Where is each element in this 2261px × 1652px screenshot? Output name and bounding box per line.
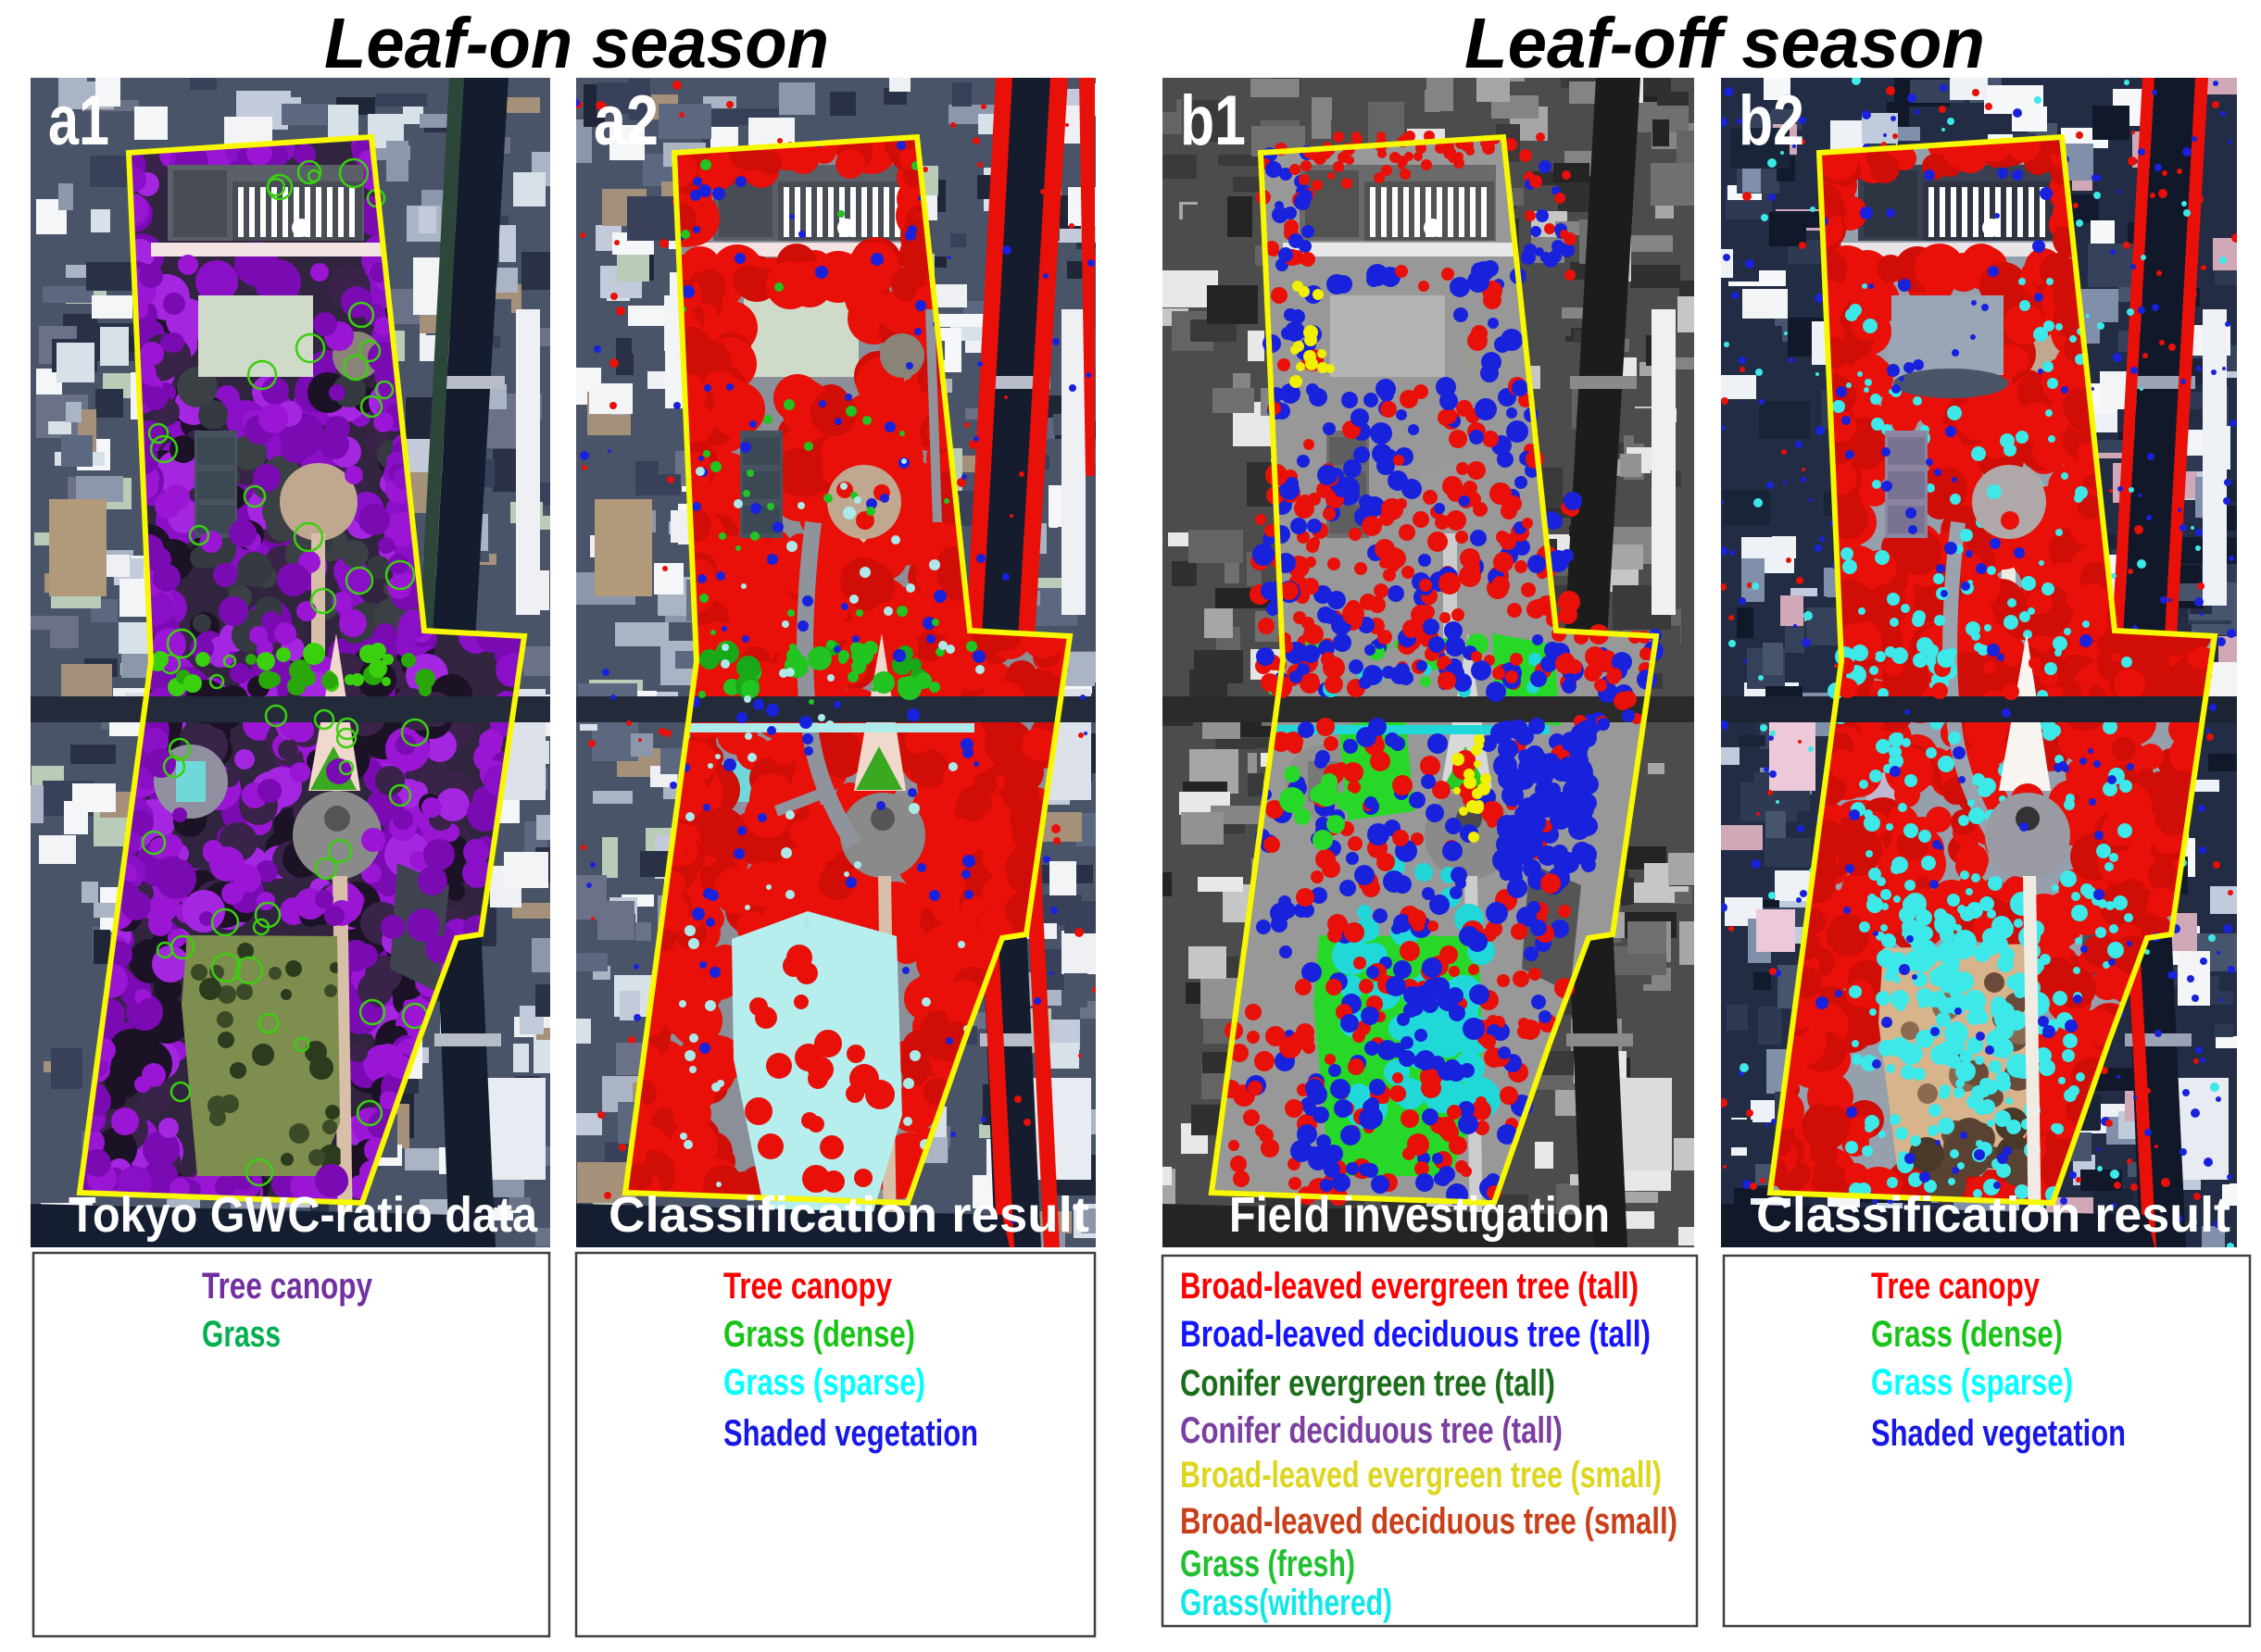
svg-text:a1: a1 xyxy=(48,81,109,160)
svg-text:Tokyo GWC-ratio data: Tokyo GWC-ratio data xyxy=(69,1187,538,1243)
svg-text:Leaf-off season: Leaf-off season xyxy=(1464,4,1985,83)
svg-text:Field investigation: Field investigation xyxy=(1229,1187,1610,1243)
svg-text:a2: a2 xyxy=(594,81,659,160)
svg-text:b1: b1 xyxy=(1180,81,1246,160)
svg-text:Classification result: Classification result xyxy=(609,1187,1089,1243)
svg-text:Leaf-on season: Leaf-on season xyxy=(324,4,829,83)
